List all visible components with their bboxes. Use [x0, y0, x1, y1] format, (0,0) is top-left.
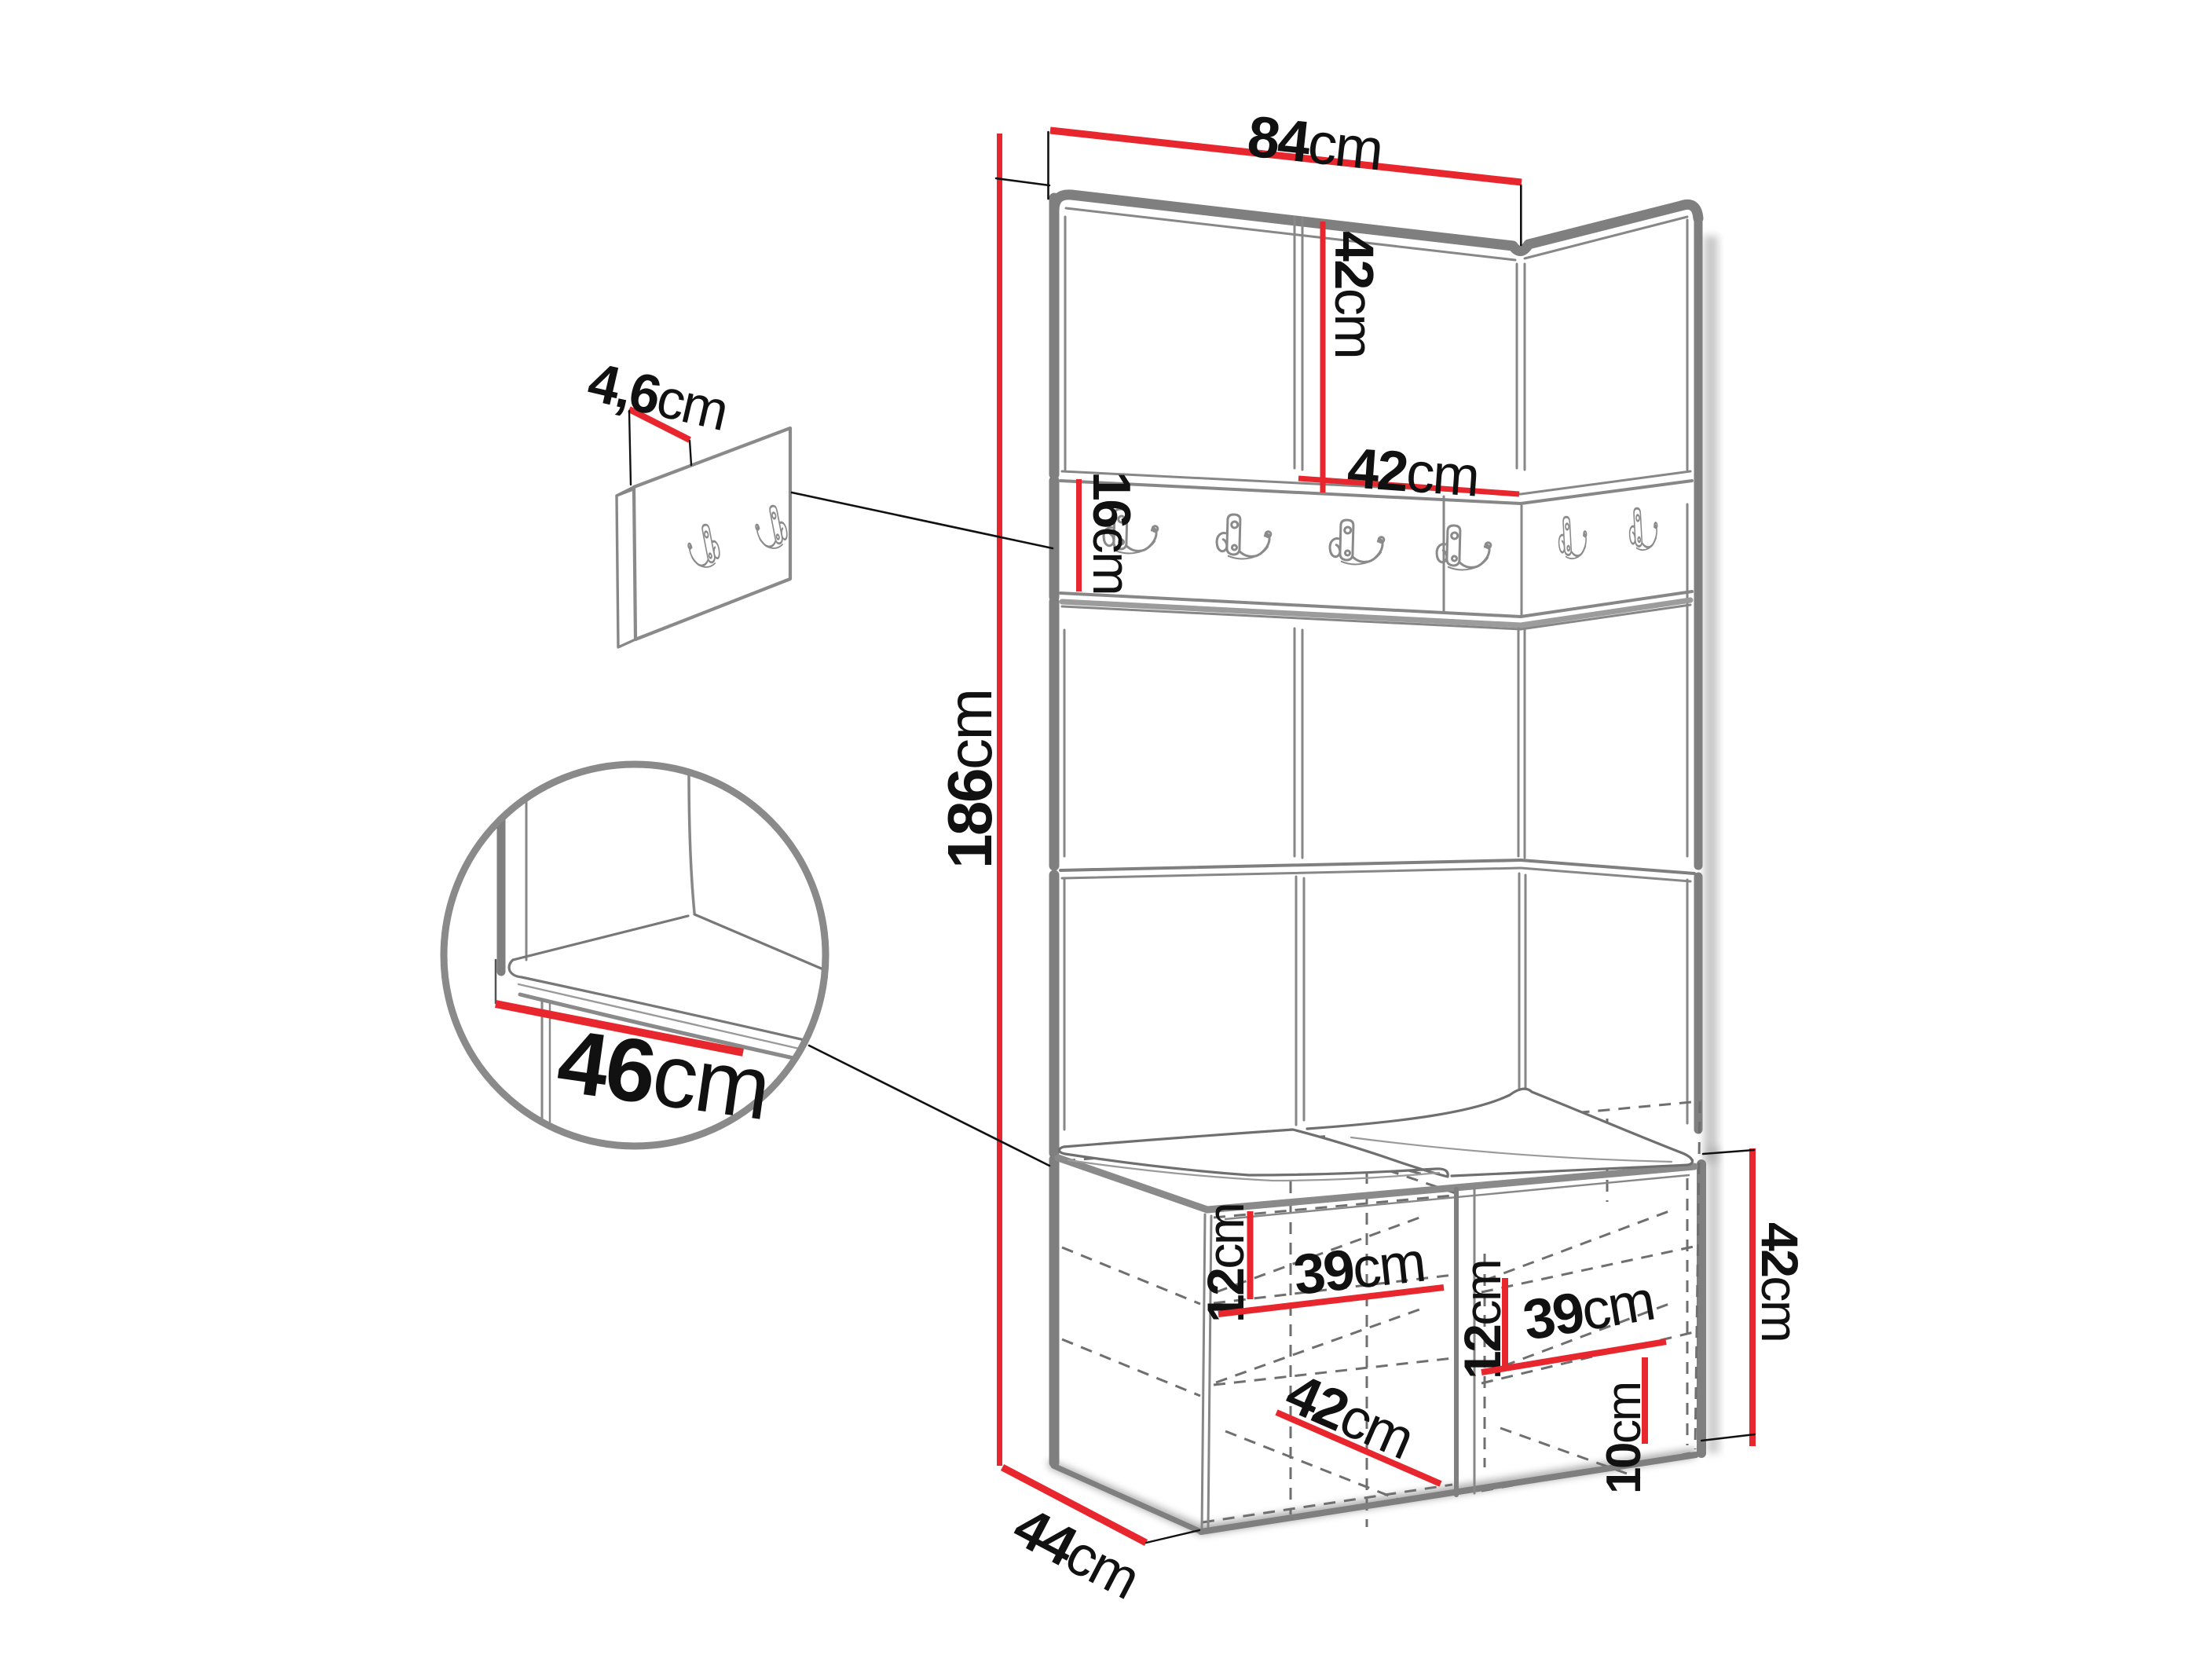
svg-text:10cm: 10cm	[1597, 1382, 1651, 1494]
svg-text:42cm: 42cm	[1346, 437, 1480, 508]
svg-text:42cm: 42cm	[1324, 231, 1385, 357]
svg-text:12cm: 12cm	[1453, 1261, 1511, 1379]
svg-text:42cm: 42cm	[1751, 1222, 1809, 1341]
svg-text:16cm: 16cm	[1082, 471, 1141, 594]
svg-text:12cm: 12cm	[1196, 1204, 1254, 1323]
svg-text:186cm: 186cm	[935, 690, 1005, 869]
